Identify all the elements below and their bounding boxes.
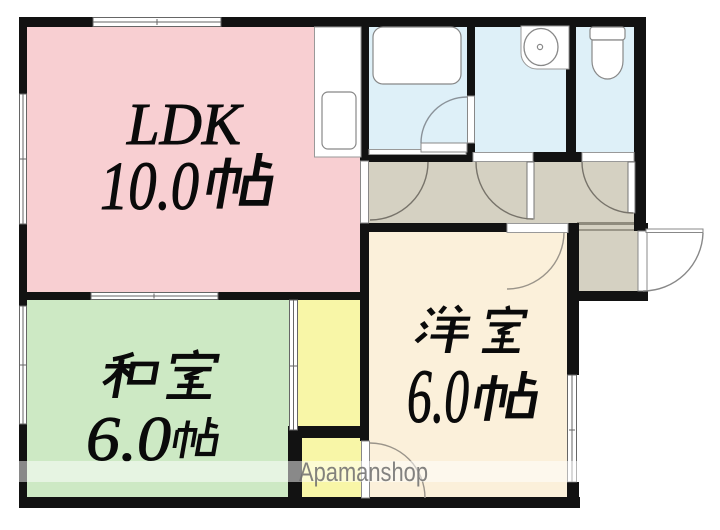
- svg-text:Apamanshop: Apamanshop: [299, 457, 428, 487]
- svg-text:10.0: 10.0: [100, 148, 199, 224]
- svg-text:6.0: 6.0: [407, 355, 469, 439]
